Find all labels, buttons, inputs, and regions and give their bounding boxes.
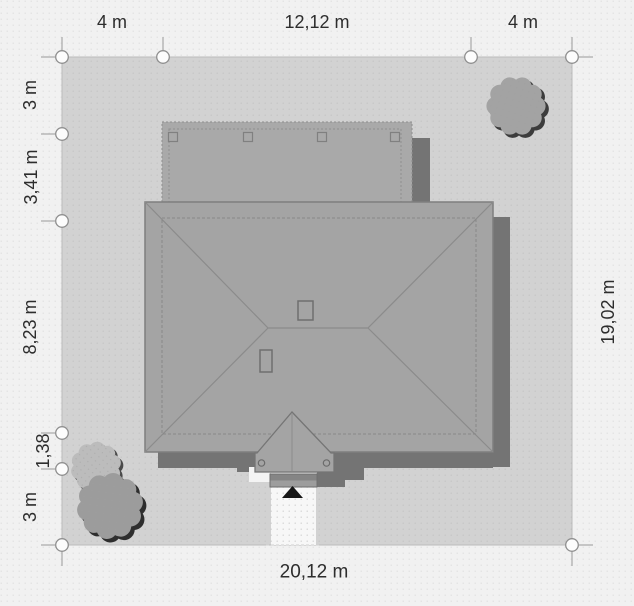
dim-top-center: 12,12 m xyxy=(284,13,349,31)
marker-left-2 xyxy=(56,215,69,228)
chimney-2 xyxy=(260,350,272,372)
dim-left-3: 8,23 m xyxy=(21,299,39,354)
marker-left-4 xyxy=(56,463,69,476)
porch-column-right xyxy=(323,460,329,466)
site-plan-canvas: 4 m 12,12 m 4 m 3 m 3,41 m 8,23 m 1,38 3… xyxy=(0,0,634,606)
dim-left-1: 3 m xyxy=(21,80,39,110)
entry-step xyxy=(270,474,317,487)
porch-column-left xyxy=(258,460,264,466)
dim-left-4: 1,38 xyxy=(34,433,52,468)
marker-top-inner-right xyxy=(465,51,478,64)
dim-top-right: 4 m xyxy=(508,13,538,31)
marker-left-1 xyxy=(56,128,69,141)
dim-right: 19,02 m xyxy=(599,279,617,344)
marker-bottom-left xyxy=(56,539,69,552)
marker-top-inner-left xyxy=(157,51,170,64)
dim-bottom: 20,12 m xyxy=(280,563,349,582)
marker-top-left xyxy=(56,51,69,64)
dim-top-left: 4 m xyxy=(97,13,127,31)
marker-left-3 xyxy=(56,427,69,440)
dim-left-5: 3 m xyxy=(21,492,39,522)
dim-left-2: 3,41 m xyxy=(22,149,40,204)
site-plan-drawing xyxy=(0,0,634,606)
marker-bottom-right xyxy=(566,539,579,552)
marker-top-right xyxy=(566,51,579,64)
main-roof xyxy=(145,202,493,452)
chimney-1 xyxy=(298,301,313,320)
